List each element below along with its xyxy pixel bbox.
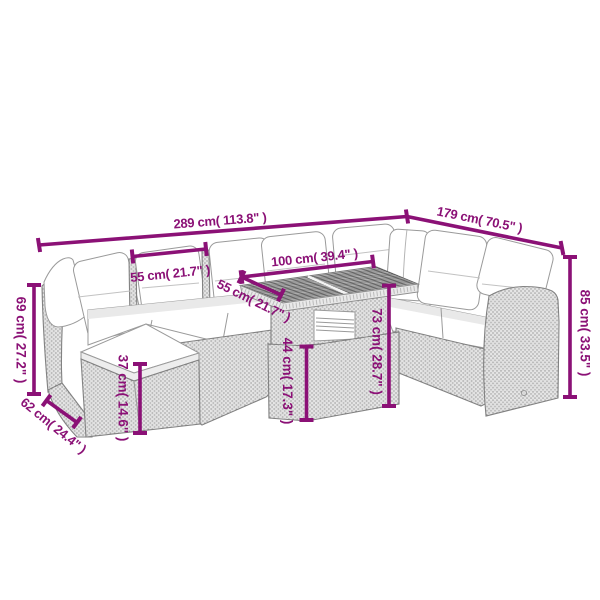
- svg-text:44 cm( 17.3" ): 44 cm( 17.3" ): [280, 338, 295, 425]
- svg-text:69 cm( 27.2" ): 69 cm( 27.2" ): [14, 297, 29, 384]
- svg-text:73 cm( 28.7" ): 73 cm( 28.7" ): [370, 308, 385, 395]
- svg-text:37 cm( 14.6" ): 37 cm( 14.6" ): [116, 355, 131, 442]
- svg-text:85 cm( 33.5" ): 85 cm( 33.5" ): [578, 290, 593, 377]
